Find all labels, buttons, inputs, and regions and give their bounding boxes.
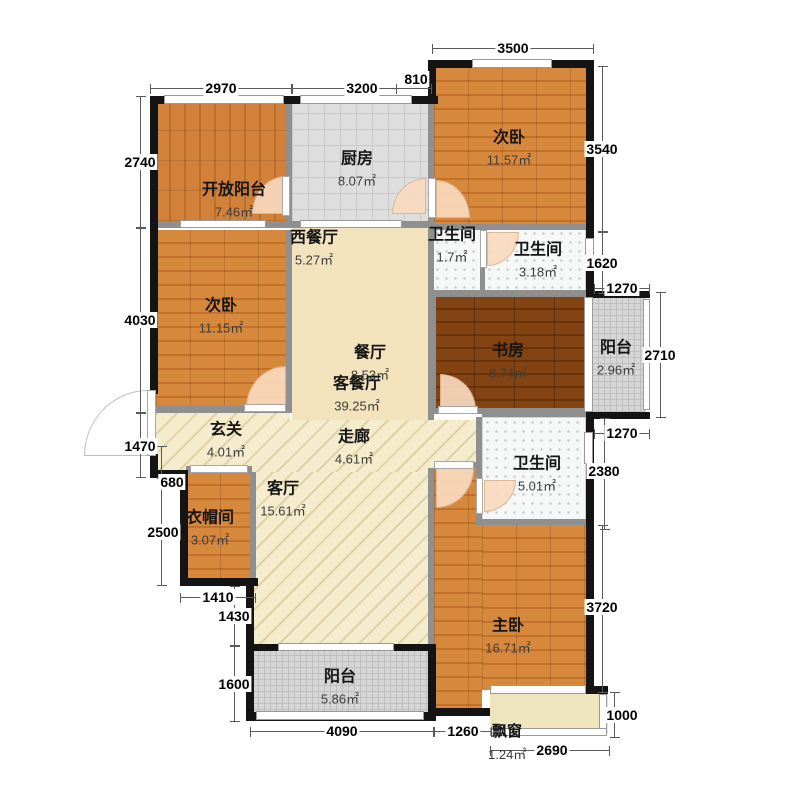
room-label-bay-window: 飘窗 <box>492 720 522 741</box>
window <box>300 95 412 104</box>
dim-right-1270-bottom: 1270 <box>604 425 639 441</box>
room-label-open-balcony: 开放阳台 7.46㎡ <box>202 178 266 222</box>
room-label-balcony-bottom: 阳台 5.86㎡ <box>321 665 359 709</box>
window <box>584 432 593 464</box>
room-name: 衣帽间 <box>186 506 234 530</box>
room-name: 阳台 <box>321 665 359 689</box>
dim-right-3540: 3540 <box>584 141 619 157</box>
room-name: 主卧 <box>485 614 531 638</box>
dim-left-1410: 1410 <box>200 589 235 605</box>
room-area: 16.71㎡ <box>485 638 531 658</box>
room-area: 5.86㎡ <box>321 689 359 709</box>
outer-wall <box>428 708 490 716</box>
inner-wall <box>482 411 586 417</box>
door-leaf-study <box>438 406 478 414</box>
room-label-living-dining: 客餐厅 39.25㎡ <box>333 372 381 416</box>
room-area: 5.01㎡ <box>513 476 561 496</box>
window <box>164 95 284 104</box>
room-area: 4.01㎡ <box>207 442 245 462</box>
window <box>256 711 424 720</box>
outer-wall <box>150 96 158 394</box>
room-area-bay-window: 1.24㎡ <box>488 744 526 764</box>
door-leaf-bath-large <box>476 478 483 514</box>
room-area: 11.57㎡ <box>487 150 532 170</box>
dim-bottom-4090: 4090 <box>324 723 359 739</box>
room-label-balcony-right: 阳台 2.96㎡ <box>597 336 635 380</box>
room-label-bedroom2-top: 次卧 11.57㎡ <box>487 126 532 170</box>
room-name: 客厅 <box>260 477 306 501</box>
room-name: 卫生间 <box>428 223 476 247</box>
room-name: 次卧 <box>487 126 532 150</box>
room-area: 5.27㎡ <box>290 250 338 270</box>
dim-left-4030: 4030 <box>122 312 157 328</box>
window <box>584 297 593 412</box>
room-label-cloakroom: 衣帽间 3.07㎡ <box>186 506 234 550</box>
room-area: 7.46㎡ <box>202 202 266 222</box>
window <box>472 59 552 68</box>
room-name: 卫生间 <box>513 452 561 476</box>
door-leaf-master <box>434 461 474 469</box>
room-name: 次卧 <box>199 294 244 318</box>
room-name: 阳台 <box>597 336 635 360</box>
outer-wall <box>586 412 650 419</box>
room-label-west-dining: 西餐厅 5.27㎡ <box>290 226 338 270</box>
dim-right-1620: 1620 <box>584 255 619 271</box>
room-name: 厨房 <box>338 147 376 171</box>
room-area: 39.25㎡ <box>333 396 381 416</box>
inner-wall <box>428 468 434 644</box>
outer-wall <box>428 644 436 716</box>
room-area: 3.07㎡ <box>186 530 234 550</box>
inner-wall <box>250 472 256 580</box>
door-leaf-open-balcony <box>282 176 290 216</box>
room-label-hallway: 玄关 4.01㎡ <box>207 418 245 462</box>
dim-left-2500: 2500 <box>145 524 180 540</box>
dim-left-680: 680 <box>158 474 185 490</box>
room-name: 飘窗 <box>492 723 522 740</box>
inner-wall <box>434 290 586 297</box>
dim-top-3200: 3200 <box>344 80 379 96</box>
dim-right-1000: 1000 <box>604 707 639 723</box>
room-name: 西餐厅 <box>290 226 338 250</box>
room-label-master: 主卧 16.71㎡ <box>485 614 531 658</box>
room-name: 餐厅 <box>351 341 389 365</box>
room-name: 客餐厅 <box>333 372 381 396</box>
dim-left-2740: 2740 <box>122 154 157 170</box>
dim-left-1470: 1470 <box>122 438 157 454</box>
dim-top-3500: 3500 <box>495 40 530 56</box>
room-area: 15.61㎡ <box>260 501 306 521</box>
room-area: 2.96㎡ <box>597 360 635 380</box>
room-area: 8.07㎡ <box>338 171 376 191</box>
dim-top-810: 810 <box>402 71 429 87</box>
dim-bottom-1260: 1260 <box>445 723 480 739</box>
dim-bottom-2690: 2690 <box>534 742 569 758</box>
dim-top-2970: 2970 <box>203 80 238 96</box>
dim-left-1430: 1430 <box>216 608 251 624</box>
room-label-bath-small: 卫生间 1.7㎡ <box>428 223 476 267</box>
room-label-corridor: 走廊 4.61㎡ <box>335 425 373 469</box>
room-label-study: 书房 8.74㎡ <box>489 339 527 383</box>
room-label-kitchen: 厨房 8.07㎡ <box>338 147 376 191</box>
dim-right-2710: 2710 <box>642 347 677 363</box>
room-label-bath-large: 卫生间 5.01㎡ <box>513 452 561 496</box>
room-name: 走廊 <box>335 425 373 449</box>
room-label-living: 客厅 15.61㎡ <box>260 477 306 521</box>
door-slider-cloakroom <box>190 465 248 473</box>
door-leaf-bedroom2-top <box>428 178 436 218</box>
room-name: 书房 <box>489 339 527 363</box>
room-area: 11.15㎡ <box>199 318 244 338</box>
window <box>278 643 394 651</box>
room-master-floor-main <box>482 525 586 690</box>
dim-right-3720: 3720 <box>584 599 619 615</box>
room-label-bath-mid: 卫生间 3.18㎡ <box>514 238 562 282</box>
inner-wall <box>482 519 586 525</box>
door-leaf-bath-mid <box>480 230 487 268</box>
room-area: 1.24㎡ <box>488 747 526 762</box>
inner-wall <box>430 297 436 413</box>
room-area: 1.7㎡ <box>428 247 476 267</box>
room-area: 8.74㎡ <box>489 363 527 383</box>
door-leaf-bedroom2-left <box>244 404 286 412</box>
room-label-bedroom2-left: 次卧 11.15㎡ <box>199 294 244 338</box>
dim-right-1270-top: 1270 <box>604 280 639 296</box>
dim-line <box>396 88 432 89</box>
room-name: 卫生间 <box>514 238 562 262</box>
room-area: 3.18㎡ <box>514 262 562 282</box>
room-name: 玄关 <box>207 418 245 442</box>
room-area: 4.61㎡ <box>335 449 373 469</box>
dim-right-2380: 2380 <box>586 463 621 479</box>
bay-window-top-frame <box>490 685 586 694</box>
floor-plan: 开放阳台 7.46㎡ 厨房 8.07㎡ 次卧 11.57㎡ 西餐厅 5.27㎡ … <box>0 0 800 800</box>
room-name: 开放阳台 <box>202 178 266 202</box>
dim-left-1600: 1600 <box>216 676 251 692</box>
